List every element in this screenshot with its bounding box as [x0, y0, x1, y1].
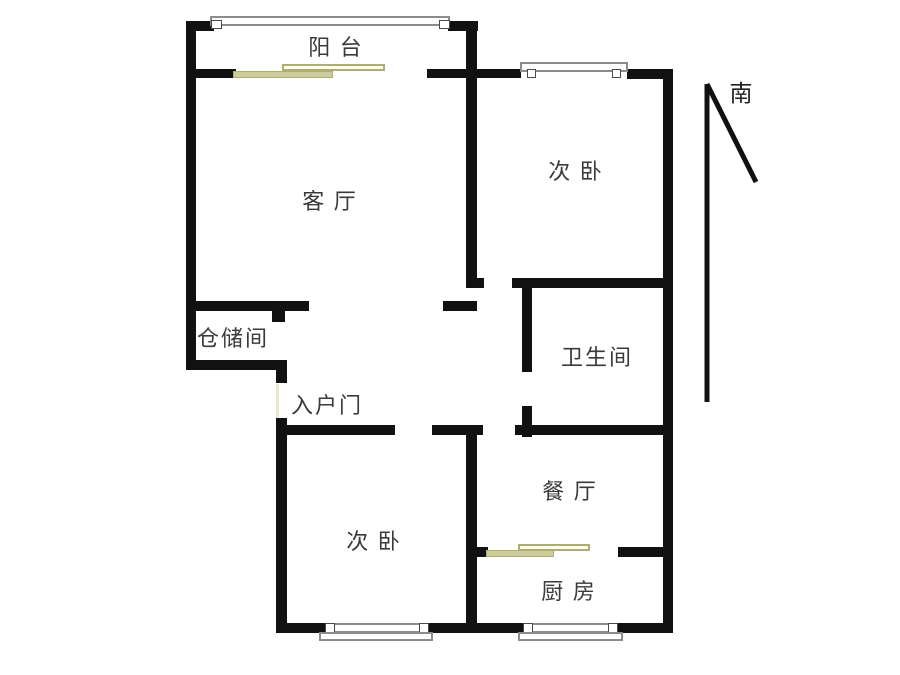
compass-south-label: 南 — [730, 74, 753, 108]
balcony-sliding-door-track — [282, 64, 385, 71]
floor-plan: 南 阳 台 客 厅 次 卧 仓储间 入户门 卫生间 餐 厅 次 卧 厨 房 — [0, 0, 900, 675]
room-label-entry-door: 入户门 — [291, 388, 363, 420]
wall-bedroom-top-bottom — [512, 278, 673, 288]
kitchen-sliding-door-track — [518, 544, 590, 551]
balcony-window-end-left — [211, 20, 222, 29]
wall-kitchen-divider-left — [466, 547, 488, 557]
kitchen-sliding-door-panel — [486, 550, 554, 557]
room-label-kitchen: 厨 房 — [541, 574, 597, 606]
room-label-storage: 仓储间 — [197, 321, 269, 353]
wall-balcony-divider-right — [427, 69, 521, 78]
wall-bedroom-bottom-right — [466, 425, 477, 633]
wall-storage-door-tick — [272, 311, 285, 322]
wall-living-bottom-left — [186, 301, 309, 311]
wall-kitchen-divider-right — [618, 547, 673, 557]
wall-entry-upper — [276, 360, 287, 383]
kitchen-window-sill — [518, 632, 623, 641]
room-label-bedroom-top: 次 卧 — [548, 154, 604, 186]
room-label-dining-room: 餐 厅 — [542, 474, 598, 506]
bedroom-bottom-window-sill — [319, 632, 433, 641]
wall-living-right — [466, 21, 477, 288]
wall-left-lower — [276, 418, 287, 633]
bedroom-top-window-end-right — [612, 69, 621, 78]
wall-bedroom-bottom-top — [277, 425, 395, 435]
room-label-bathroom: 卫生间 — [561, 340, 633, 372]
wall-balcony-divider-left — [186, 69, 236, 78]
wall-living-bottom-right — [443, 301, 477, 311]
wall-bathroom-left-upper — [522, 283, 532, 372]
balcony-window — [210, 16, 450, 26]
wall-bedroom-top-bottom-stub — [466, 278, 484, 288]
balcony-sliding-door-panel — [233, 71, 333, 78]
entry-door-opening — [276, 384, 279, 418]
wall-storage-bottom — [186, 360, 287, 370]
wall-bathroom-bottom — [515, 425, 673, 435]
room-label-balcony: 阳 台 — [308, 30, 364, 62]
bedroom-top-window-end-left — [527, 69, 536, 78]
room-label-living-room: 客 厅 — [302, 184, 358, 216]
balcony-window-end-right — [439, 20, 450, 29]
room-label-bedroom-bottom: 次 卧 — [346, 524, 402, 556]
south-arrow — [688, 72, 768, 412]
